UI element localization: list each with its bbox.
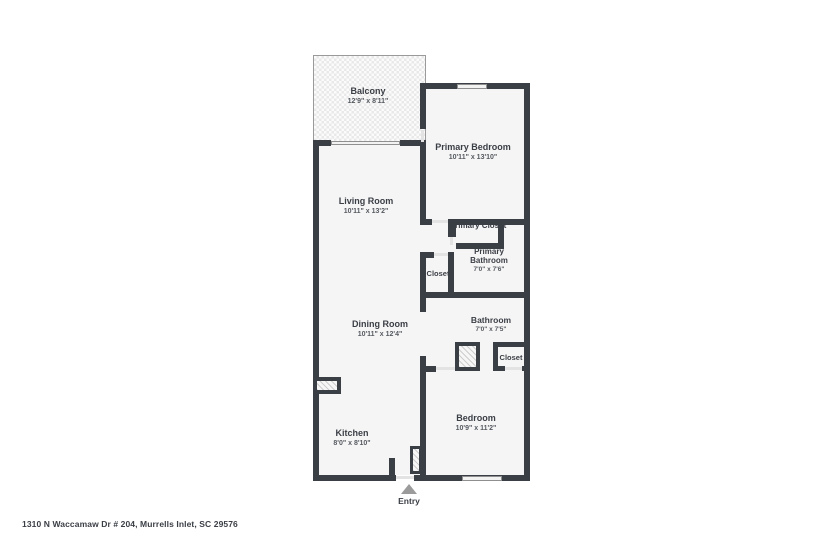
window [457, 84, 487, 89]
fireplace-fixture [313, 377, 341, 394]
room-name: Bedroom [456, 413, 497, 424]
address-text: 1310 N Waccamaw Dr # 204, Murrells Inlet… [22, 519, 238, 529]
door-opening [436, 367, 456, 370]
room-name: Kitchen [333, 428, 370, 439]
room-dims: 10'11" x 13'10" [435, 154, 511, 162]
door-opening [434, 253, 448, 256]
wall-segment [313, 140, 319, 481]
entry-label: Entry [398, 496, 420, 506]
room-label-hall-closet: Closet [427, 269, 450, 278]
shower-fixture [455, 342, 480, 371]
room-dims: 10'9" x 11'2" [456, 425, 497, 433]
room-label-living-room: Living Room 10'11" x 13'2" [339, 196, 394, 216]
room-dims: 7'0" x 7'6" [460, 266, 518, 274]
room-label-bedroom: Bedroom 10'9" x 11'2" [456, 413, 497, 433]
room-name: Bathroom [471, 315, 511, 325]
room-label-primary-bathroom: Primary Bathroom 7'0" x 7'6" [460, 247, 518, 274]
room-name: Primary Bedroom [435, 142, 511, 153]
wall-segment [522, 366, 530, 371]
wall-segment [420, 292, 530, 298]
wall-segment [313, 475, 396, 481]
room-label-balcony: Balcony 12'9" x 8'11" [348, 86, 389, 106]
room-label-bathroom: Bathroom 7'0" x 7'5" [471, 315, 511, 334]
room-fill-left-wing [316, 143, 426, 475]
room-dims: 7'0" x 7'5" [471, 326, 511, 334]
utility-fixture [410, 446, 422, 474]
sliding-door [331, 141, 400, 145]
room-dims: 8'0" x 8'10" [333, 440, 370, 448]
door-opening [432, 220, 448, 223]
door-opening [450, 237, 453, 245]
room-label-bedroom-closet: Closet [500, 353, 523, 362]
room-name: Dining Room [352, 319, 408, 330]
wall-segment [426, 366, 436, 372]
room-dims: 12'9" x 8'11" [348, 98, 389, 106]
room-name: Living Room [339, 196, 394, 207]
wall-segment [420, 142, 426, 219]
room-name: Balcony [348, 86, 389, 97]
window [462, 476, 502, 481]
wall-segment [426, 252, 434, 258]
wall-segment [420, 298, 426, 312]
room-name: Closet [427, 269, 450, 278]
room-name: Primary Closet [449, 221, 507, 230]
entry-text: Entry [398, 496, 420, 506]
floor-plan-canvas: Balcony 12'9" x 8'11" Primary Bedroom 10… [0, 0, 840, 560]
room-label-primary-closet: Primary Closet [449, 221, 507, 230]
room-dims: 10'11" x 13'2" [339, 208, 394, 216]
room-label-primary-bedroom: Primary Bedroom 10'11" x 13'10" [435, 142, 511, 162]
wall-segment [420, 219, 432, 225]
door-opening [505, 367, 522, 370]
room-label-dining-room: Dining Room 10'11" x 12'4" [352, 319, 408, 339]
wall-segment [389, 458, 395, 475]
room-dims: 10'11" x 12'4" [352, 331, 408, 339]
wall-segment [493, 342, 530, 347]
door-opening [421, 130, 424, 142]
wall-segment [493, 366, 505, 371]
wall-segment [524, 83, 530, 481]
wall-segment [313, 140, 331, 146]
room-label-kitchen: Kitchen 8'0" x 8'10" [333, 428, 370, 448]
room-name: Closet [500, 353, 523, 362]
wall-segment [420, 89, 426, 129]
entry-door-opening [396, 476, 414, 479]
room-name: Primary Bathroom [460, 247, 518, 265]
entry-arrow-icon [401, 484, 417, 494]
